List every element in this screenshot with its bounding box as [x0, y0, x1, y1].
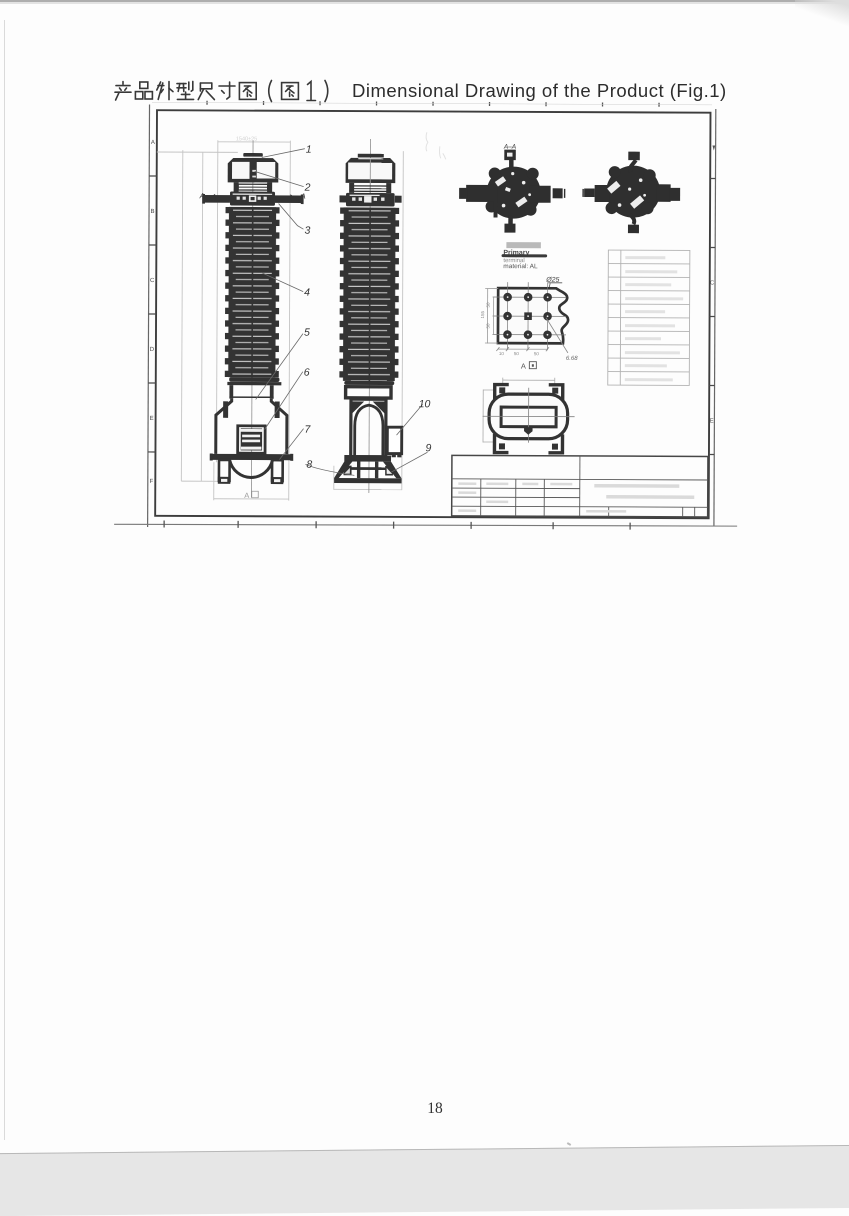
svg-text:6: 6: [304, 367, 310, 379]
svg-text:50: 50: [486, 323, 491, 329]
svg-text:155: 155: [480, 310, 485, 318]
svg-text:4: 4: [304, 287, 310, 299]
svg-text:1: 1: [306, 144, 312, 156]
svg-text:A–A: A–A: [503, 144, 516, 151]
svg-text:10: 10: [419, 398, 431, 410]
svg-text:E: E: [710, 419, 714, 425]
svg-text:D: D: [150, 347, 155, 353]
svg-text:9: 9: [425, 442, 431, 454]
svg-text:A: A: [521, 362, 526, 371]
svg-text:A: A: [151, 140, 155, 146]
svg-text:50: 50: [486, 302, 491, 308]
svg-text:F: F: [149, 479, 153, 485]
svg-text:6.68: 6.68: [566, 356, 578, 362]
svg-text:3: 3: [304, 225, 310, 237]
svg-text:50: 50: [534, 351, 540, 356]
svg-text:A: A: [244, 491, 249, 500]
svg-text:50: 50: [514, 351, 520, 356]
svg-text:C: C: [150, 278, 155, 284]
svg-text:C: C: [710, 281, 715, 287]
svg-text:material: AL: material: AL: [503, 263, 538, 270]
svg-text:5: 5: [304, 327, 310, 339]
svg-text:A: A: [199, 191, 205, 200]
svg-text:8: 8: [306, 459, 312, 471]
svg-text:7: 7: [305, 424, 312, 436]
svg-text:1540±25: 1540±25: [236, 136, 257, 142]
svg-text:E: E: [150, 416, 154, 422]
svg-text:2: 2: [304, 182, 311, 194]
svg-text:B: B: [151, 209, 155, 215]
svg-text:10: 10: [499, 351, 505, 356]
